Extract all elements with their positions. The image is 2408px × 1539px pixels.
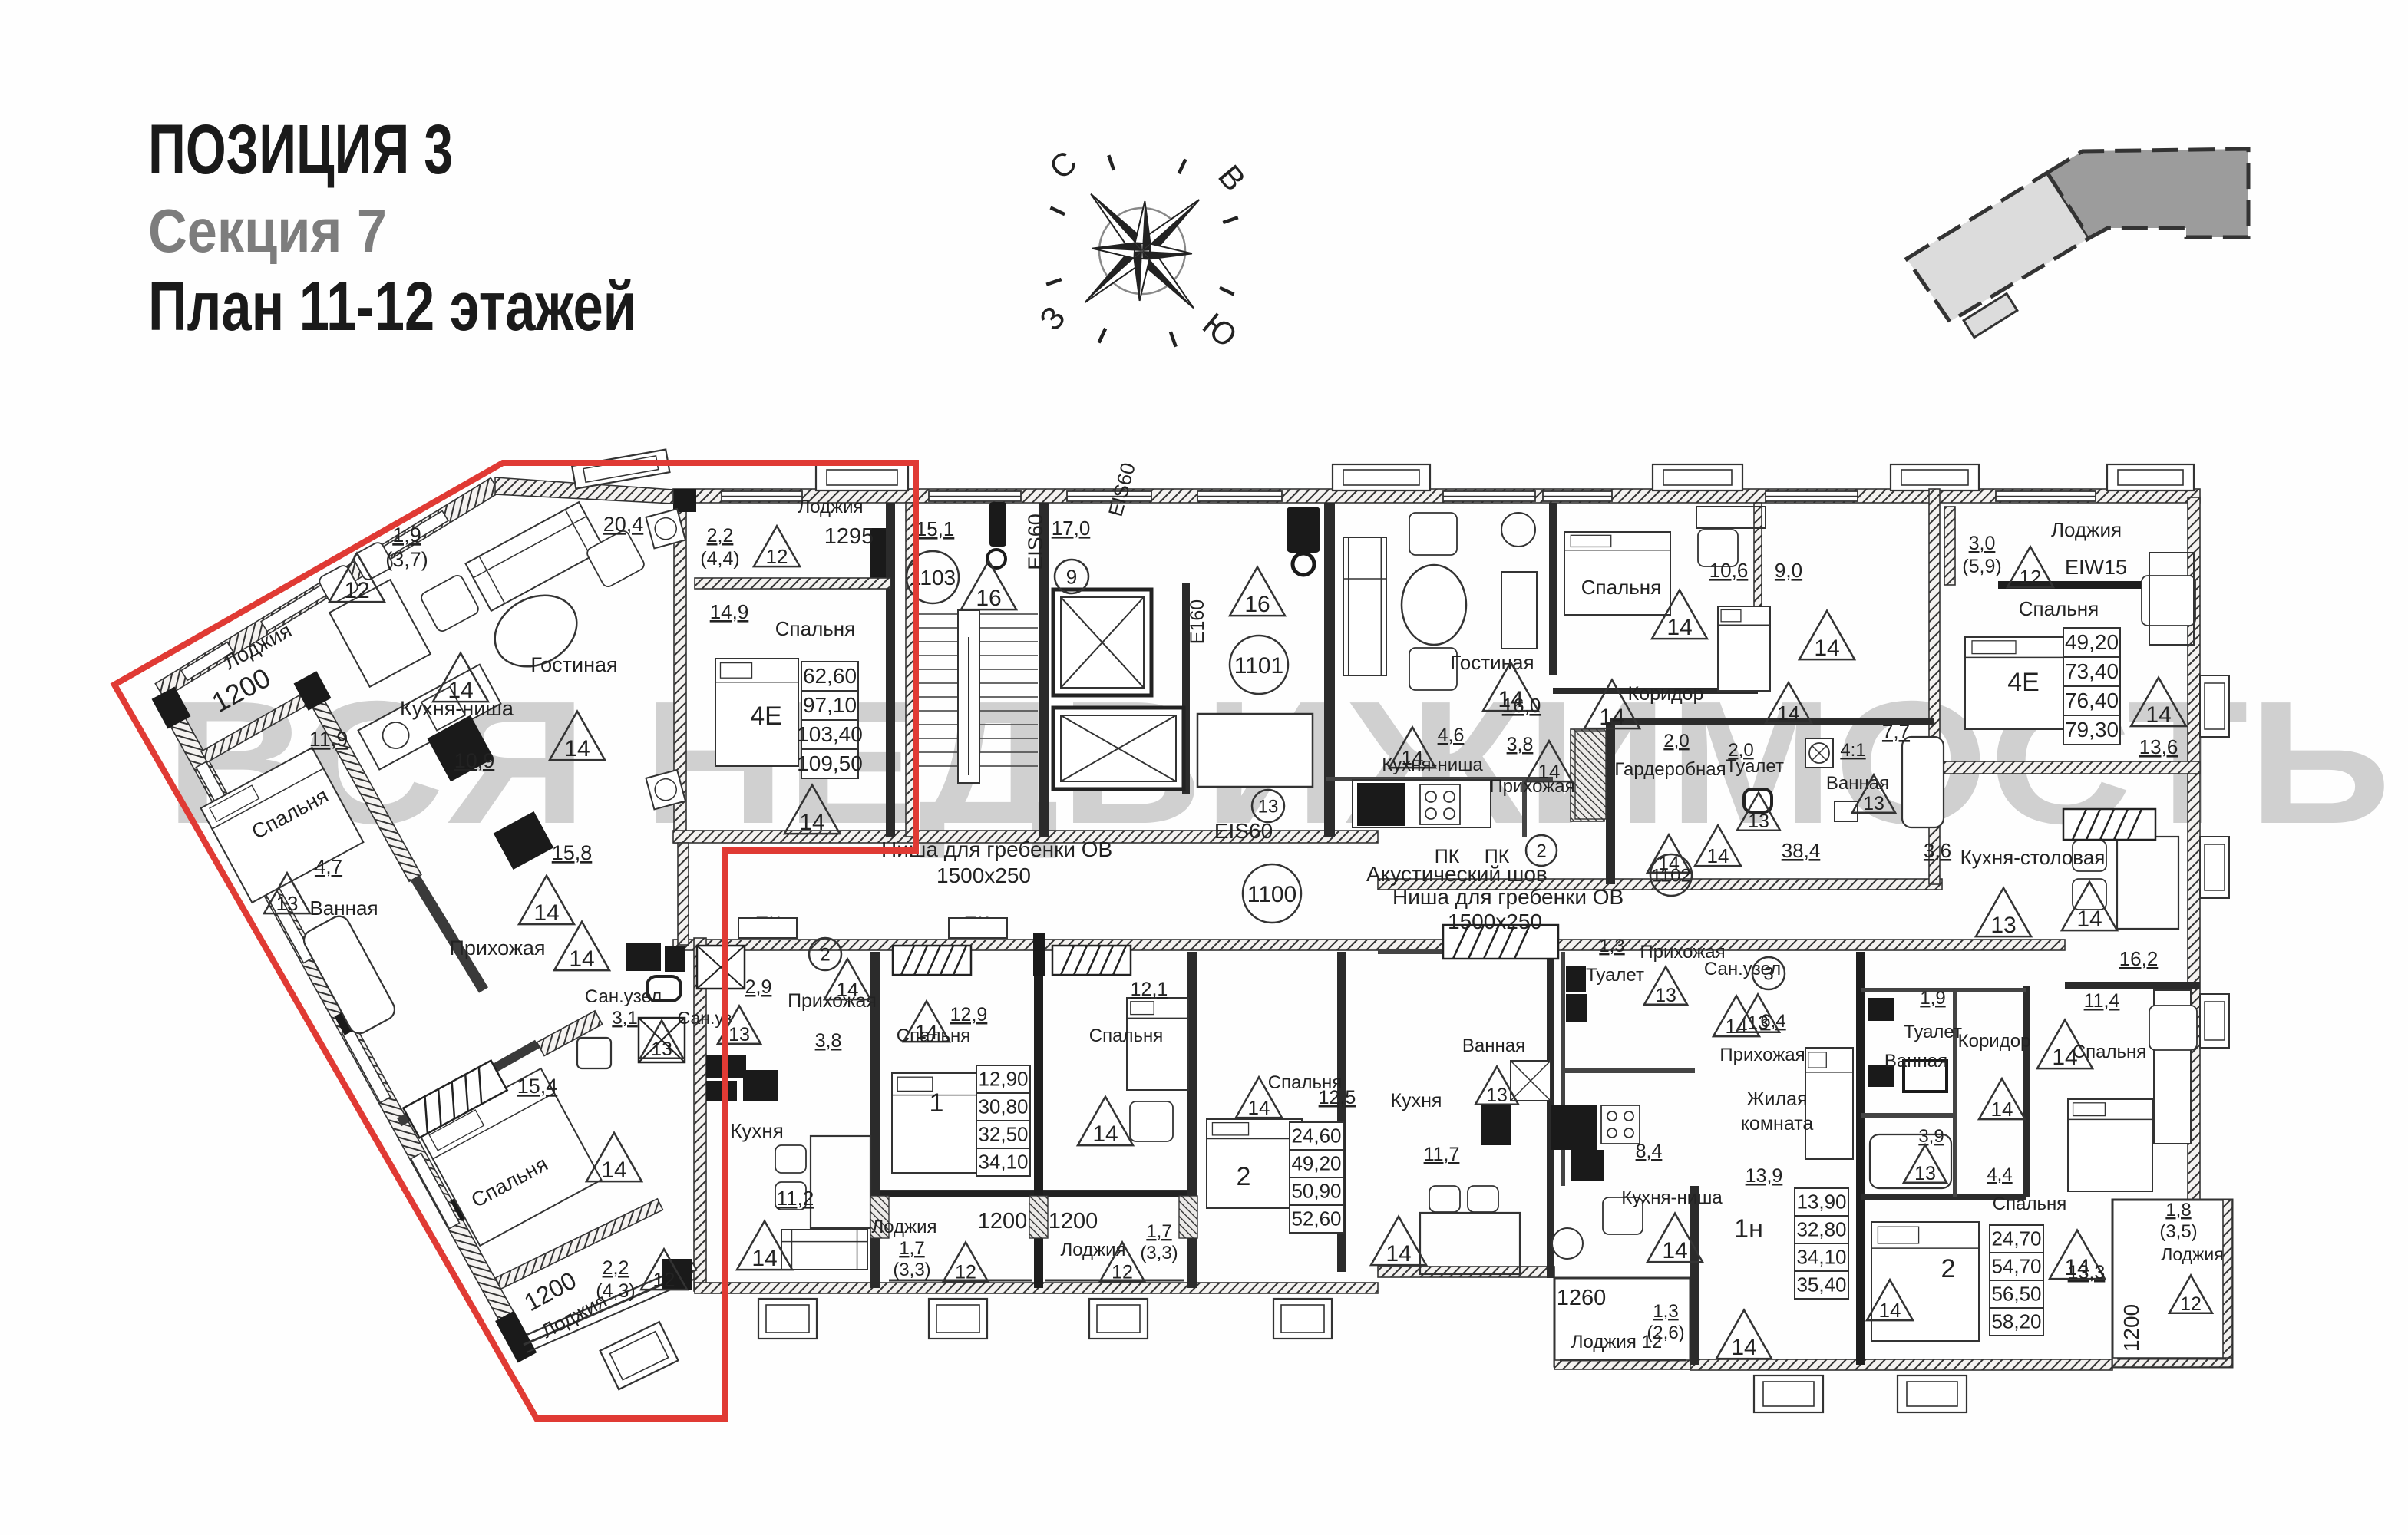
svg-text:ПК: ПК <box>1485 846 1510 867</box>
svg-text:9,0: 9,0 <box>1775 559 1802 582</box>
svg-text:3,8: 3,8 <box>815 1030 842 1052</box>
svg-text:49,20: 49,20 <box>2065 630 2119 654</box>
svg-text:Кухня-ниша: Кухня-ниша <box>1382 755 1483 775</box>
svg-text:Лоджия: Лоджия <box>871 1217 936 1237</box>
svg-text:Спальня: Спальня <box>897 1025 970 1046</box>
svg-text:79,30: 79,30 <box>2065 718 2119 741</box>
svg-text:13: 13 <box>1863 793 1884 814</box>
svg-text:комната: комната <box>1741 1113 1814 1134</box>
svg-text:13: 13 <box>1748 811 1769 832</box>
svg-text:13,3: 13,3 <box>2068 1262 2106 1283</box>
svg-text:Коридор: Коридор <box>1958 1031 2031 1052</box>
svg-text:13: 13 <box>1990 913 2016 938</box>
svg-text:3,9: 3,9 <box>1918 1126 1944 1147</box>
svg-text:1н: 1н <box>1734 1214 1763 1243</box>
svg-text:20,4: 20,4 <box>603 513 644 536</box>
svg-text:12: 12 <box>2020 566 2042 589</box>
svg-text:EIW15: EIW15 <box>2065 556 2127 579</box>
svg-text:1200: 1200 <box>1049 1209 1098 1234</box>
svg-text:(4,4): (4,4) <box>700 548 739 570</box>
svg-text:4,4: 4,4 <box>1987 1164 2012 1185</box>
svg-text:План 11-12 этажей: План 11-12 этажей <box>148 269 636 345</box>
svg-text:14: 14 <box>601 1158 626 1183</box>
svg-text:8,4: 8,4 <box>1636 1141 1663 1162</box>
svg-text:Гардеробная: Гардеробная <box>1614 759 1726 780</box>
svg-text:13: 13 <box>1747 1012 1769 1034</box>
svg-text:12: 12 <box>1112 1261 1133 1283</box>
svg-text:11,9: 11,9 <box>309 728 348 751</box>
svg-text:2,2: 2,2 <box>603 1257 629 1279</box>
svg-text:13,6: 13,6 <box>2139 735 2178 758</box>
svg-text:76,40: 76,40 <box>2065 689 2119 712</box>
svg-text:1260: 1260 <box>1557 1286 1607 1310</box>
svg-text:ПОЗИЦИЯ 3: ПОЗИЦИЯ 3 <box>148 111 453 189</box>
svg-text:Спальня: Спальня <box>775 617 855 640</box>
svg-text:12,9: 12,9 <box>950 1004 988 1025</box>
svg-text:14: 14 <box>1731 1335 1756 1360</box>
svg-text:2: 2 <box>1536 841 1546 862</box>
svg-text:(3,3): (3,3) <box>1140 1243 1178 1263</box>
svg-text:12: 12 <box>2180 1293 2202 1315</box>
svg-text:14: 14 <box>569 946 594 972</box>
svg-text:14: 14 <box>1991 1098 2013 1121</box>
svg-text:1,3: 1,3 <box>1653 1301 1678 1322</box>
svg-text:103,40: 103,40 <box>797 722 863 746</box>
svg-text:2: 2 <box>1237 1162 1251 1191</box>
svg-text:54,70: 54,70 <box>1991 1255 2041 1278</box>
svg-text:13: 13 <box>728 1024 750 1045</box>
svg-text:14: 14 <box>533 900 559 926</box>
svg-text:13: 13 <box>1655 985 1676 1006</box>
svg-text:24,70: 24,70 <box>1991 1227 2041 1250</box>
svg-text:62,60: 62,60 <box>803 664 857 688</box>
svg-text:16,2: 16,2 <box>2119 947 2159 970</box>
svg-text:14,9: 14,9 <box>710 600 749 623</box>
svg-text:14: 14 <box>1092 1121 1118 1147</box>
svg-text:Коридор: Коридор <box>1628 683 1704 705</box>
svg-text:Кухня-ниша: Кухня-ниша <box>1621 1187 1723 1208</box>
svg-text:EIS60: EIS60 <box>1024 514 1047 570</box>
svg-text:34,10: 34,10 <box>1796 1246 1846 1269</box>
svg-text:3,0: 3,0 <box>1969 533 1996 554</box>
svg-text:2: 2 <box>1941 1254 1956 1283</box>
svg-text:56,50: 56,50 <box>1991 1283 2041 1306</box>
svg-text:1101: 1101 <box>1234 653 1284 679</box>
svg-text:17,0: 17,0 <box>1052 517 1091 540</box>
svg-text:14: 14 <box>1666 615 1692 640</box>
svg-text:14: 14 <box>2076 907 2102 932</box>
svg-text:11,4: 11,4 <box>2084 990 2120 1012</box>
svg-text:Кухня-столовая: Кухня-столовая <box>1960 846 2106 869</box>
svg-text:2,2: 2,2 <box>707 525 734 547</box>
svg-text:14: 14 <box>799 810 824 835</box>
svg-text:(3,5): (3,5) <box>2159 1221 2197 1242</box>
svg-text:1500х250: 1500х250 <box>1448 910 1542 933</box>
svg-text:12,5: 12,5 <box>1319 1087 1356 1108</box>
svg-text:12: 12 <box>955 1261 976 1283</box>
svg-text:Туалет: Туалет <box>1586 965 1644 986</box>
svg-text:14: 14 <box>2145 702 2171 728</box>
svg-text:(3,3): (3,3) <box>893 1260 930 1280</box>
svg-text:Сан.узел: Сан.узел <box>585 986 662 1007</box>
svg-text:14: 14 <box>1707 844 1729 867</box>
svg-text:Секция 7: Секция 7 <box>148 197 387 265</box>
svg-text:3,1: 3,1 <box>612 1008 637 1029</box>
svg-text:Спальня: Спальня <box>2019 597 2099 620</box>
svg-text:1,9: 1,9 <box>1920 988 1945 1009</box>
svg-text:4Е: 4Е <box>750 702 782 731</box>
svg-text:12: 12 <box>344 578 369 603</box>
svg-text:10,9: 10,9 <box>454 749 495 772</box>
svg-text:ПК: ПК <box>1435 846 1460 867</box>
svg-text:15,4: 15,4 <box>517 1075 558 1098</box>
svg-text:Лоджия: Лоджия <box>2161 1244 2224 1264</box>
svg-text:3,6: 3,6 <box>1924 839 1951 862</box>
svg-text:14: 14 <box>837 978 859 1001</box>
svg-text:Ванная: Ванная <box>1462 1035 1525 1056</box>
svg-text:Кухня: Кухня <box>730 1119 784 1142</box>
svg-text:1100: 1100 <box>1247 882 1297 907</box>
svg-text:Лоджия: Лоджия <box>2051 518 2122 541</box>
svg-text:Прихожая: Прихожая <box>1719 1045 1805 1065</box>
svg-text:Жилая: Жилая <box>1746 1088 1807 1110</box>
svg-text:Сан.узел: Сан.узел <box>1704 959 1781 979</box>
svg-text:3,8: 3,8 <box>1507 734 1534 755</box>
svg-text:13: 13 <box>1914 1163 1936 1184</box>
svg-text:2,0: 2,0 <box>1663 731 1689 751</box>
svg-text:12: 12 <box>653 1268 675 1291</box>
svg-text:1,3: 1,3 <box>1599 936 1624 956</box>
svg-text:109,50: 109,50 <box>797 751 863 775</box>
svg-text:13: 13 <box>1486 1085 1508 1106</box>
svg-text:50,90: 50,90 <box>1291 1180 1341 1203</box>
svg-text:Кухня: Кухня <box>1391 1090 1442 1111</box>
svg-text:2: 2 <box>820 945 830 966</box>
svg-text:Прихожая: Прихожая <box>449 936 545 959</box>
svg-text:Спальня: Спальня <box>1581 576 1661 599</box>
svg-text:13: 13 <box>651 1039 672 1060</box>
svg-text:2,9: 2,9 <box>745 976 772 998</box>
svg-text:14: 14 <box>1599 705 1624 730</box>
svg-text:Ванная: Ванная <box>1884 1051 1947 1072</box>
svg-text:7,7: 7,7 <box>1882 720 1910 743</box>
svg-text:32,50: 32,50 <box>978 1123 1028 1146</box>
svg-text:34,10: 34,10 <box>978 1151 1028 1174</box>
svg-text:97,10: 97,10 <box>803 693 857 717</box>
svg-text:12: 12 <box>766 545 788 568</box>
svg-text:(5,9): (5,9) <box>1962 556 2001 577</box>
svg-text:14: 14 <box>564 736 590 761</box>
svg-text:Е160: Е160 <box>1187 599 1208 644</box>
svg-text:1,7: 1,7 <box>899 1238 924 1259</box>
svg-text:14: 14 <box>1386 1241 1411 1267</box>
svg-text:Гостиная: Гостиная <box>530 653 617 676</box>
svg-text:35,40: 35,40 <box>1796 1273 1846 1296</box>
svg-text:Ниша для гребенки ОВ: Ниша для гребенки ОВ <box>1392 885 1624 909</box>
svg-text:14: 14 <box>1879 1299 1901 1322</box>
svg-text:32,80: 32,80 <box>1796 1218 1846 1241</box>
svg-text:EIS60: EIS60 <box>1214 819 1273 843</box>
svg-text:16,0: 16,0 <box>1502 694 1541 717</box>
svg-text:12,1: 12,1 <box>1131 979 1168 1000</box>
svg-text:Гостиная: Гостиная <box>1450 651 1534 674</box>
svg-text:16: 16 <box>976 586 1001 611</box>
svg-text:1,7: 1,7 <box>1146 1221 1171 1242</box>
svg-text:11,7: 11,7 <box>1424 1144 1460 1165</box>
svg-text:1200: 1200 <box>2119 1304 2143 1352</box>
svg-text:1102: 1102 <box>1651 866 1691 887</box>
svg-text:13: 13 <box>1258 797 1279 817</box>
svg-text:Туалет: Туалет <box>1904 1022 1962 1042</box>
svg-text:30,80: 30,80 <box>978 1095 1028 1118</box>
svg-text:15,1: 15,1 <box>916 517 955 540</box>
svg-text:49,20: 49,20 <box>1291 1152 1341 1175</box>
svg-text:(2,6): (2,6) <box>1647 1323 1684 1343</box>
svg-text:Ванная: Ванная <box>309 897 378 920</box>
svg-text:1500х250: 1500х250 <box>936 864 1031 887</box>
svg-text:4,7: 4,7 <box>315 855 342 878</box>
svg-text:13: 13 <box>276 892 299 915</box>
svg-text:(3,7): (3,7) <box>385 548 428 571</box>
svg-text:73,40: 73,40 <box>2065 659 2119 683</box>
svg-text:Спальня: Спальня <box>2073 1042 2146 1062</box>
svg-text:Туалет: Туалет <box>1726 756 1784 777</box>
svg-text:15,8: 15,8 <box>552 841 593 864</box>
svg-text:1295: 1295 <box>824 524 874 549</box>
svg-text:16: 16 <box>1244 592 1270 617</box>
svg-text:14: 14 <box>1538 760 1561 783</box>
svg-text:1,8: 1,8 <box>2165 1200 2191 1220</box>
svg-text:52,60: 52,60 <box>1291 1207 1341 1230</box>
svg-text:4Е: 4Е <box>2007 668 2040 697</box>
svg-text:(4,3): (4,3) <box>596 1280 635 1302</box>
svg-text:11,2: 11,2 <box>777 1187 814 1210</box>
svg-text:1200: 1200 <box>978 1209 1028 1234</box>
svg-text:4:1: 4:1 <box>1840 740 1865 761</box>
svg-text:58,20: 58,20 <box>1991 1310 2041 1333</box>
svg-text:14: 14 <box>1248 1096 1270 1119</box>
svg-text:13,9: 13,9 <box>1746 1165 1783 1187</box>
svg-text:24,60: 24,60 <box>1291 1125 1341 1148</box>
svg-text:14: 14 <box>1814 636 1839 661</box>
svg-text:14: 14 <box>448 678 473 703</box>
svg-text:12,90: 12,90 <box>978 1068 1028 1091</box>
svg-text:Спальня: Спальня <box>1089 1025 1163 1046</box>
svg-text:14: 14 <box>1778 702 1800 725</box>
svg-text:38,4: 38,4 <box>1782 839 1821 862</box>
svg-text:13,90: 13,90 <box>1796 1191 1846 1214</box>
svg-text:9: 9 <box>1066 565 1077 588</box>
svg-text:14: 14 <box>1662 1238 1687 1263</box>
svg-text:4,6: 4,6 <box>1438 725 1465 746</box>
svg-text:Лоджия: Лоджия <box>798 497 863 517</box>
svg-text:14: 14 <box>751 1246 777 1271</box>
svg-text:Спальня: Спальня <box>1993 1194 2066 1214</box>
svg-text:10,6: 10,6 <box>1709 559 1749 582</box>
svg-text:1: 1 <box>930 1088 944 1118</box>
